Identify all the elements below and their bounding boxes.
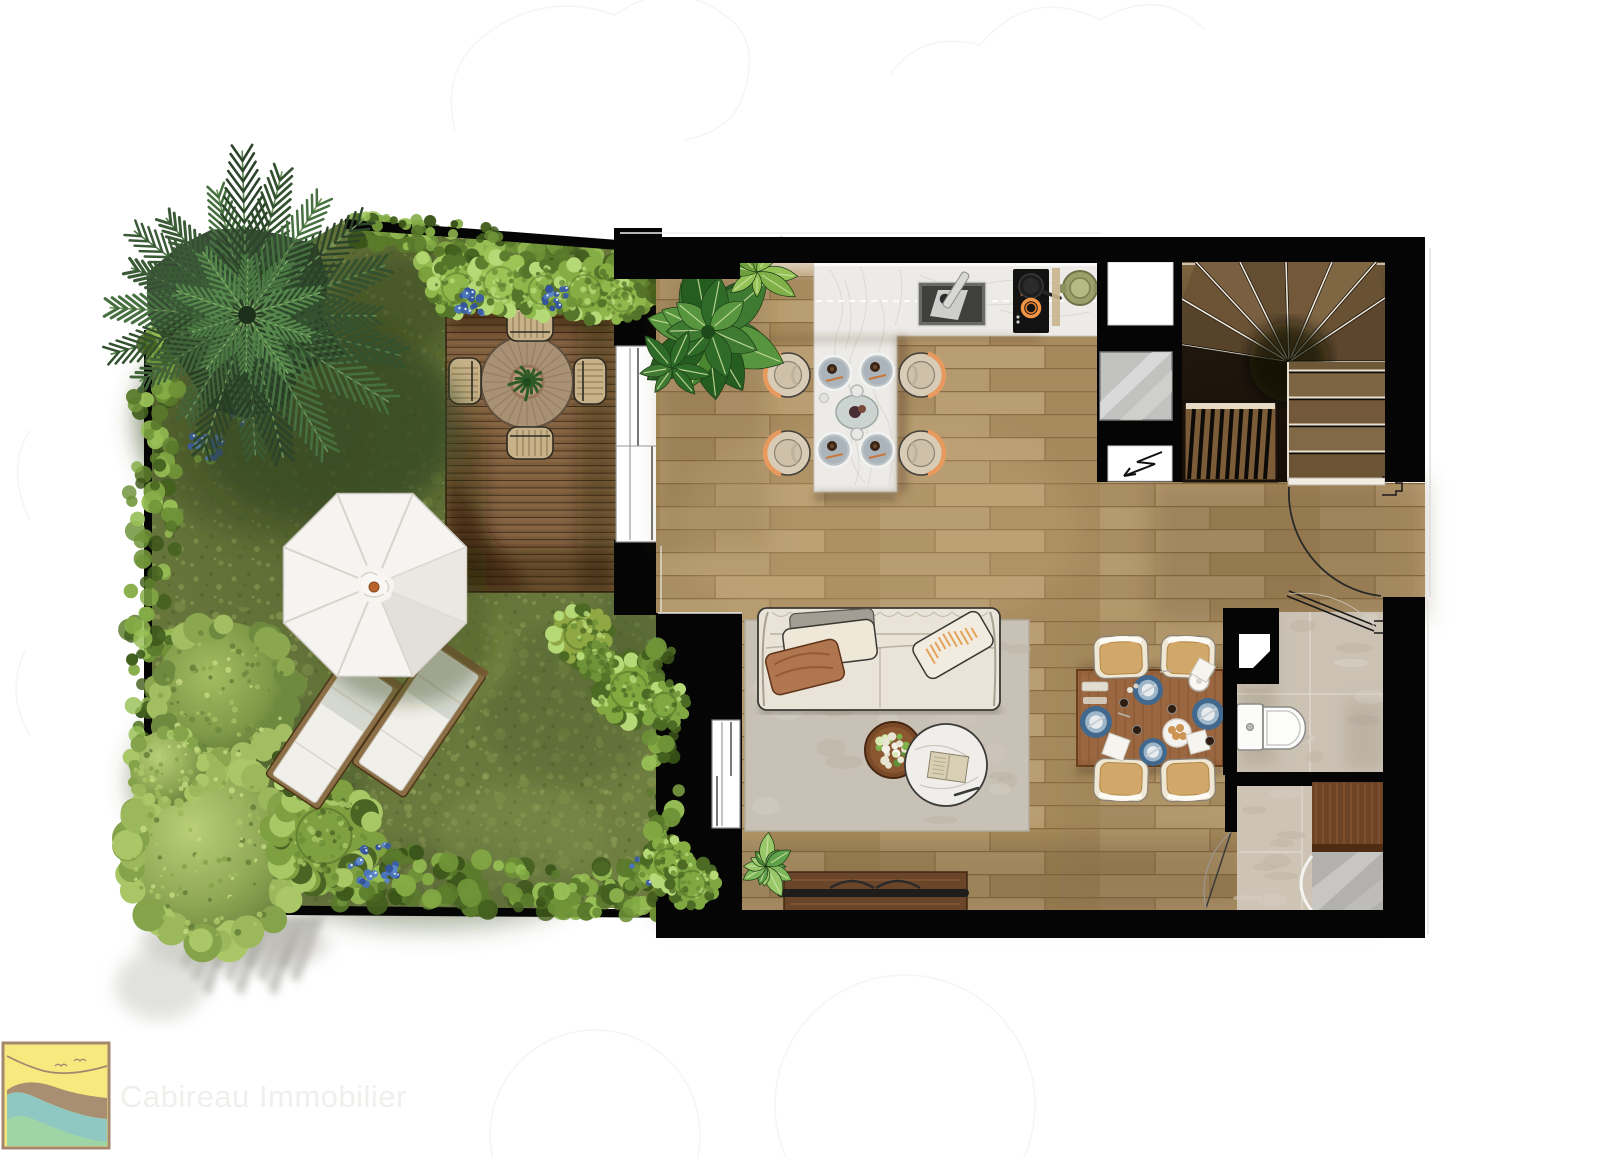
- svg-text:Cabireau Immobilier: Cabireau Immobilier: [120, 1079, 407, 1114]
